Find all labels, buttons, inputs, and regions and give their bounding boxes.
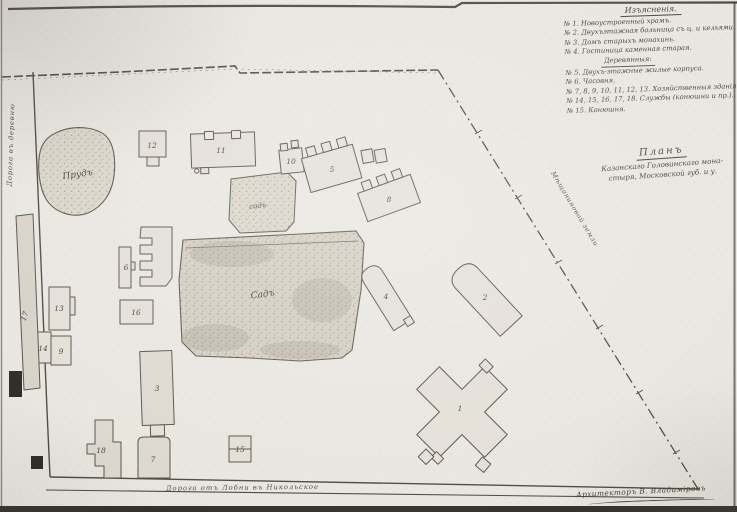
building-label-14: 14 bbox=[38, 344, 48, 353]
building-label-1: 1 bbox=[458, 404, 463, 413]
building-3 bbox=[140, 350, 175, 436]
shed-solid-bottom bbox=[31, 456, 43, 469]
building-label-18: 18 bbox=[96, 446, 106, 455]
building-label-6: 6 bbox=[124, 263, 129, 272]
building-label-3: 3 bbox=[155, 384, 160, 393]
small-garden-label: садъ bbox=[249, 201, 267, 210]
building-label-11: 11 bbox=[216, 146, 226, 155]
building-label-9: 9 bbox=[59, 347, 64, 356]
building-label-16: 16 bbox=[131, 308, 141, 317]
building-label-5: 5 bbox=[330, 165, 335, 174]
building-label-7: 7 bbox=[151, 455, 156, 464]
scanned-plan-page: Прудъ садъ Садъ bbox=[0, 0, 737, 512]
building-label-4: 4 bbox=[383, 292, 389, 301]
building-label-13: 13 bbox=[54, 304, 64, 313]
legend-heading-text: Изъясненія. bbox=[621, 4, 681, 17]
shed-solid-left bbox=[9, 371, 22, 397]
building-label-8: 8 bbox=[387, 195, 392, 204]
building-label-2: 2 bbox=[482, 293, 488, 302]
building-label-15: 15 bbox=[235, 445, 245, 454]
building-label-10: 10 bbox=[286, 157, 296, 166]
building-label-12: 12 bbox=[147, 141, 157, 150]
legend-block: Изъясненія. № 1. Новоустроенный храмъ. №… bbox=[563, 2, 737, 117]
